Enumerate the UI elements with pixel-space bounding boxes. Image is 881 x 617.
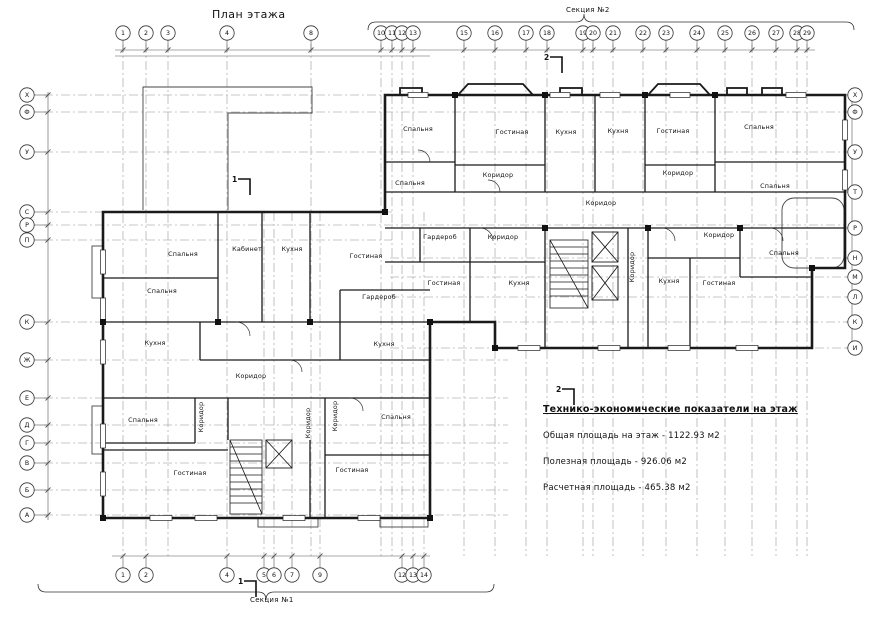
room-label: Спальня (744, 123, 774, 131)
elevators-section2 (592, 232, 618, 300)
tep-line-total-area: Общая площадь на этаж - 1122.93 м2 (543, 431, 803, 441)
room-label: Кухня (144, 339, 165, 347)
grid-axis-left-label: Д (25, 422, 30, 429)
porch-bottom-2 (380, 518, 428, 527)
section-cut-flag (550, 57, 562, 73)
room-label: Кухня (373, 340, 394, 348)
grid-axis-bottom-label: 1 (121, 572, 125, 579)
terrace-outline (143, 87, 312, 210)
grid-axis-left-label: Ж (24, 357, 31, 364)
grid-axis-right-label: Т (852, 189, 857, 196)
room-label: Спальня (128, 416, 158, 424)
grid-axis-top-label: 20 (589, 30, 597, 37)
room-label: Гостиная (350, 252, 383, 260)
room-label: Коридор (304, 408, 312, 438)
blueprint-page: План этажа Секция №2 Секция №1 (0, 0, 881, 617)
grid-axis-top-label: 15 (460, 30, 468, 37)
room-label: Спальня (147, 287, 177, 295)
section-cut-flag (238, 179, 250, 195)
section-cut-label: 2 (556, 385, 561, 394)
grid-axis-top-label: 12 (398, 30, 406, 37)
grid-axis-left-label: В (25, 460, 29, 467)
grid-axis-left-label: К (25, 319, 30, 326)
tep-block: Технико-экономические показатели на этаж… (543, 404, 803, 493)
grid-axis-top-label: 8 (309, 30, 313, 37)
section-cut-flag (244, 581, 256, 597)
room-label: Коридор (236, 372, 266, 380)
room-label: Кухня (281, 245, 302, 253)
grid-axis-right-label: Л (853, 294, 858, 301)
grid-axis-top-label: 2 (144, 30, 148, 37)
bay-window-1 (458, 84, 533, 95)
floor-plan-canvas: 1234810111213151617181920212223242526272… (0, 0, 881, 617)
room-label: Кухня (658, 277, 679, 285)
section1-brace (38, 584, 494, 600)
section-cut-label: 1 (238, 577, 243, 586)
grid-axis-right-label: Н (853, 255, 858, 262)
grid-axis-bottom-label: 9 (318, 572, 322, 579)
grid-axis-right-label: И (853, 345, 858, 352)
room-label: Спальня (769, 249, 799, 257)
room-label: Коридор (663, 169, 693, 177)
grid-axis-left-label: Б (25, 487, 29, 494)
room-label: Гардероб (423, 233, 457, 241)
dim-line-top (115, 50, 815, 56)
section-cut-flag (562, 389, 574, 405)
grid-axis-top-label: 3 (166, 30, 170, 37)
grid-axis-bottom-label: 6 (272, 572, 276, 579)
grid-axis-bottom-label: 4 (225, 572, 229, 579)
room-label: Спальня (168, 250, 198, 258)
room-label: Гостиная (428, 279, 461, 287)
room-label: Гардероб (362, 293, 396, 301)
grid-axis-top-label: 21 (609, 30, 617, 37)
grid-axis-top-label: 25 (721, 30, 729, 37)
tep-line-useful-area: Полезная площадь - 926.06 м2 (543, 457, 803, 467)
grid-axis-top-label: 1 (121, 30, 125, 37)
grid-axis-top-label: 29 (803, 30, 811, 37)
room-label: Кухня (508, 279, 529, 287)
staircase-section1 (230, 440, 262, 514)
room-label: Спальня (760, 182, 790, 190)
room-label: Коридор (197, 402, 205, 432)
room-label: Гостиная (336, 466, 369, 474)
room-label: Кухня (555, 128, 576, 136)
grid-axis-left-label: Ф (24, 109, 30, 116)
grid-axis-left-label: С (25, 209, 30, 216)
room-label: Кабинет (232, 245, 262, 253)
grid-axis-left-label: Г (25, 440, 29, 447)
grid-axis-left-label: Е (25, 395, 29, 402)
grid-axis-top-label: 27 (772, 30, 780, 37)
room-label: Коридор (488, 233, 518, 241)
grid-axis-bottom-label: 2 (144, 572, 148, 579)
grid-axis-bottom-label: 14 (420, 572, 428, 579)
grid-axis-top-label: 13 (409, 30, 417, 37)
room-label: Гостиная (657, 127, 690, 135)
section-braces (38, 14, 854, 600)
grid-axis-right-label: К (853, 319, 858, 326)
grid-axis-right-label: Ф (852, 109, 858, 116)
grid-axis-left-label: А (25, 512, 30, 519)
room-label: Спальня (381, 413, 411, 421)
grid-axis-top-label: 16 (491, 30, 499, 37)
grid-axis-right-label: М (852, 274, 857, 281)
room-label: Спальня (403, 125, 433, 133)
grid-axis-right-label: Х (853, 92, 858, 99)
balcony-right-round (782, 198, 844, 268)
room-label: Коридор (628, 252, 636, 282)
grid-axis-right-label: У (853, 149, 857, 156)
grid-axis-bottom-label: 13 (409, 572, 417, 579)
grid-axis-top-label: 23 (662, 30, 670, 37)
grid-axis-left-label: У (25, 149, 29, 156)
grid-axis-bottom-label: 7 (290, 572, 294, 579)
grid-axis-top-label: 4 (225, 30, 229, 37)
grid-axis-left-label: Х (25, 92, 30, 99)
elevator-section1 (266, 440, 292, 468)
grid-axis-top-label: 18 (543, 30, 551, 37)
grid-axis-left-label: П (25, 237, 30, 244)
room-label: Коридор (331, 401, 339, 431)
staircase-section2 (550, 240, 588, 308)
grid-axis-top-label: 10 (377, 30, 385, 37)
room-label: Коридор (483, 171, 513, 179)
room-label: Коридор (586, 199, 616, 207)
grid-axis-top-label: 24 (693, 30, 701, 37)
room-label: Гостиная (703, 279, 736, 287)
grid-axis-bottom-label: 5 (262, 572, 266, 579)
room-label: Гостиная (174, 469, 207, 477)
grid-axis-top-label: 26 (748, 30, 756, 37)
tep-line-calculated-area: Расчетная площадь - 465.38 м2 (543, 483, 803, 493)
room-label: Спальня (395, 179, 425, 187)
grid-axis-bottom-label: 12 (398, 572, 406, 579)
grid-axis-top-label: 22 (639, 30, 647, 37)
room-label: Коридор (704, 231, 734, 239)
section-cut-label: 1 (232, 175, 237, 184)
tep-title: Технико-экономические показатели на этаж (543, 404, 803, 415)
grid-axis-top-label: 17 (522, 30, 530, 37)
section-cut-label: 2 (544, 53, 549, 62)
room-label: Кухня (607, 127, 628, 135)
grid-axis-left-label: Р (25, 222, 29, 229)
room-label: Гостиная (496, 128, 529, 136)
grid-axis-right-label: Р (853, 225, 857, 232)
